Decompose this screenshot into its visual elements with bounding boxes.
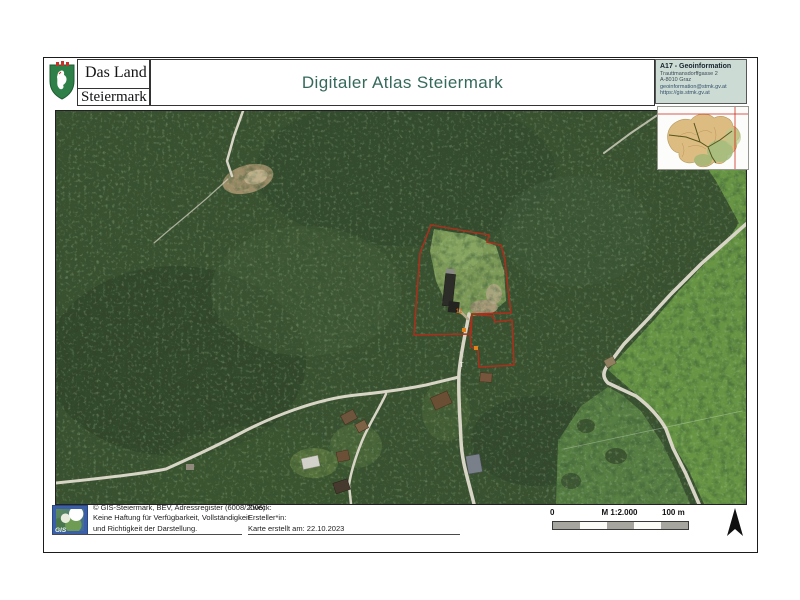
logo-text-line2: Steiermark xyxy=(81,89,147,106)
house xyxy=(466,454,483,474)
steiermark-coat-of-arms-icon xyxy=(48,60,76,100)
footer-rule-left xyxy=(52,534,242,535)
styria-overview-graphic xyxy=(658,107,748,169)
address-marker xyxy=(474,346,478,350)
north-arrow-icon xyxy=(719,505,751,540)
map-meta-block: Zweck: Ersteller*in: Karte erstellt am: … xyxy=(248,503,344,534)
created-date-label: Karte erstellt am: 22.10.2023 xyxy=(248,524,344,534)
house-number-label: 11 xyxy=(456,309,463,315)
department-info-box: A17 - Geoinformation Trauttmansdorffgass… xyxy=(655,59,747,104)
creator-label: Ersteller*in: xyxy=(248,513,344,523)
scale-bar xyxy=(552,521,689,530)
point-t-label: T xyxy=(460,363,464,369)
map-print-page: Das Land Steiermark Digitaler Atlas Stei… xyxy=(0,0,800,600)
house xyxy=(336,450,350,462)
address-marker xyxy=(462,328,466,332)
logo-text-line1: Das Land xyxy=(85,64,147,82)
disclaimer-line1: Keine Haftung für Verfügbarkeit, Vollstä… xyxy=(93,513,265,523)
shed xyxy=(186,464,194,470)
aerial-map-canvas: 11 T xyxy=(55,110,747,505)
house xyxy=(480,373,493,383)
gis-steiermark-logo: GIS xyxy=(52,505,88,535)
gis-logo-text: GIS xyxy=(55,527,66,534)
department-name: A17 - Geoinformation xyxy=(660,63,742,70)
disclaimer-line2: und Richtigkeit der Darstellung. xyxy=(93,524,265,534)
canopy-texture-light xyxy=(56,111,746,504)
page-title: Digitaler Atlas Steiermark xyxy=(302,73,503,93)
styria-overview-map xyxy=(657,106,749,170)
footer-rule-middle xyxy=(248,534,460,535)
scale-end-label: 100 m xyxy=(662,508,685,517)
land-steiermark-logo: Das Land Steiermark xyxy=(77,59,150,106)
title-bar: Digitaler Atlas Steiermark xyxy=(150,59,655,106)
copyright-block: © GIS-Steiermark, BEV, Adressregister (6… xyxy=(93,503,265,534)
department-website: https://gis.stmk.gv.at xyxy=(660,90,742,96)
